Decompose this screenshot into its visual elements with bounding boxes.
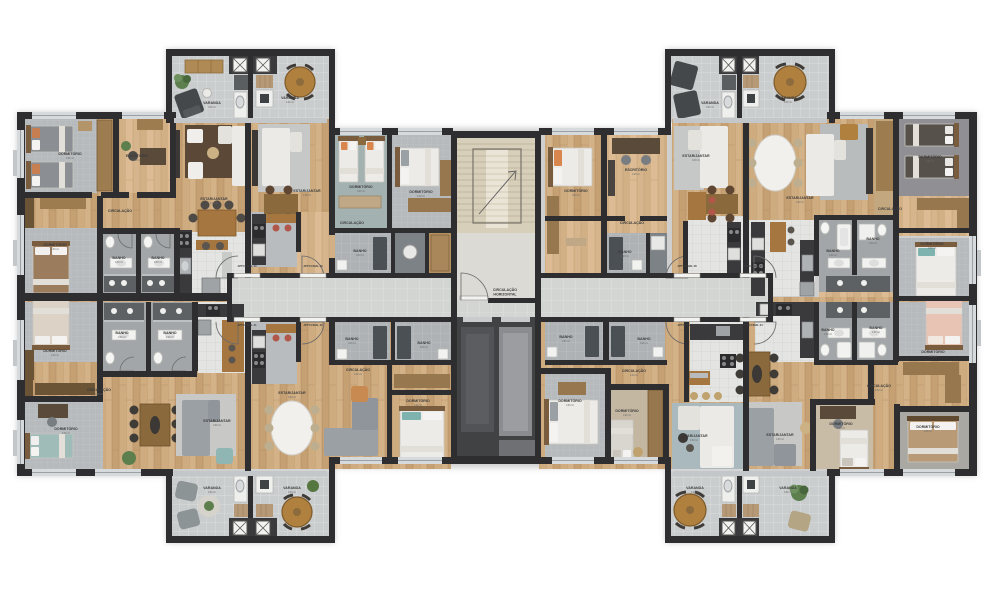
svg-text:0.00 m²: 0.00 m² — [208, 106, 216, 109]
svg-text:DORMITÓRIO: DORMITÓRIO — [43, 242, 67, 247]
svg-text:0.00 m²: 0.00 m² — [62, 432, 70, 435]
svg-text:VARANDA: VARANDA — [701, 101, 719, 105]
svg-text:BANHO: BANHO — [866, 237, 879, 241]
svg-text:ESTAR/JANTAR: ESTAR/JANTAR — [293, 189, 321, 193]
svg-text:0.00 m²: 0.00 m² — [288, 491, 296, 494]
svg-text:DORMITÓRIO: DORMITÓRIO — [409, 189, 433, 194]
svg-text:ESTAR/JANTAR: ESTAR/JANTAR — [682, 154, 710, 158]
svg-text:0.00 m²: 0.00 m² — [118, 336, 126, 339]
svg-text:0.00 m²: 0.00 m² — [354, 373, 362, 376]
svg-text:ESTAR/JANTAR: ESTAR/JANTAR — [680, 434, 708, 438]
svg-text:0.00 m²: 0.00 m² — [929, 355, 937, 358]
svg-text:0.00 m²: 0.00 m² — [213, 424, 221, 427]
svg-text:CIRCULAÇÃO: CIRCULAÇÃO — [340, 220, 364, 225]
svg-text:0.00 m²: 0.00 m² — [875, 389, 883, 392]
svg-text:0.00 m²: 0.00 m² — [133, 159, 141, 162]
svg-text:DORMITÓRIO: DORMITÓRIO — [918, 154, 942, 159]
svg-text:0.00 m²: 0.00 m² — [872, 331, 880, 334]
svg-text:DORMITÓRIO: DORMITÓRIO — [558, 398, 582, 403]
svg-text:0.00 m²: 0.00 m² — [924, 430, 932, 433]
svg-text:VARANDA: VARANDA — [283, 486, 301, 490]
svg-text:DORMITÓRIO: DORMITÓRIO — [829, 421, 853, 426]
svg-text:BANHO: BANHO — [151, 256, 164, 260]
svg-text:0.00 m²: 0.00 m² — [210, 202, 218, 205]
svg-text:CIRCULAÇÃO: CIRCULAÇÃO — [346, 367, 370, 372]
svg-text:0.00 m²: 0.00 m² — [829, 254, 837, 257]
svg-text:DORMITÓRIO: DORMITÓRIO — [406, 398, 430, 403]
svg-text:APTO FINAL 29: APTO FINAL 29 — [303, 264, 323, 268]
svg-text:APTO FINAL 30: APTO FINAL 30 — [237, 264, 257, 268]
svg-text:ESTAR/JANTAR: ESTAR/JANTAR — [786, 196, 814, 200]
svg-text:BANHO: BANHO — [353, 249, 366, 253]
svg-text:DORMITÓRIO: DORMITÓRIO — [43, 348, 67, 353]
svg-text:DORMITÓRIO: DORMITÓRIO — [54, 426, 78, 431]
svg-text:VARANDA: VARANDA — [203, 486, 221, 490]
svg-text:0.00 m²: 0.00 m² — [208, 491, 216, 494]
svg-text:BANHO: BANHO — [869, 326, 882, 330]
svg-text:0.00 m²: 0.00 m² — [640, 342, 648, 345]
svg-text:0.00 m²: 0.00 m² — [417, 195, 425, 198]
svg-text:CIRCULAÇÃO: CIRCULAÇÃO — [620, 220, 644, 225]
svg-text:0.00 m²: 0.00 m² — [66, 157, 74, 160]
svg-text:0.00 m²: 0.00 m² — [928, 247, 936, 250]
svg-text:BANHO: BANHO — [417, 341, 430, 345]
svg-text:HORIZONTAL: HORIZONTAL — [493, 293, 517, 297]
svg-text:0.00 m²: 0.00 m² — [572, 194, 580, 197]
svg-text:BANHO: BANHO — [115, 331, 128, 335]
svg-text:CIRCULAÇÃO: CIRCULAÇÃO — [867, 383, 891, 388]
svg-text:0.00 m²: 0.00 m² — [630, 374, 638, 377]
svg-text:APTO FINAL 32: APTO FINAL 32 — [303, 323, 323, 327]
svg-text:APTO FINAL 34: APTO FINAL 34 — [743, 323, 763, 327]
svg-text:ESTAR/JANTAR: ESTAR/JANTAR — [278, 391, 306, 395]
svg-text:0.00 m²: 0.00 m² — [566, 404, 574, 407]
svg-text:0.00 m²: 0.00 m² — [562, 340, 570, 343]
svg-text:0.00 m²: 0.00 m² — [166, 336, 174, 339]
svg-text:VARANDA: VARANDA — [203, 101, 221, 105]
svg-text:ESTAR/JANTAR: ESTAR/JANTAR — [766, 433, 794, 437]
svg-text:0.00 m²: 0.00 m² — [706, 106, 714, 109]
svg-text:0.00 m²: 0.00 m² — [115, 261, 123, 264]
svg-text:0.00 m²: 0.00 m² — [356, 254, 364, 257]
svg-text:0.00 m²: 0.00 m² — [776, 438, 784, 441]
svg-text:0.00 m²: 0.00 m² — [796, 201, 804, 204]
svg-text:CIRCULAÇÃO: CIRCULAÇÃO — [87, 387, 111, 392]
svg-text:0.00 m²: 0.00 m² — [154, 261, 162, 264]
svg-text:0.00 m²: 0.00 m² — [784, 491, 792, 494]
svg-text:BANHO: BANHO — [559, 335, 572, 339]
svg-text:BANHO: BANHO — [163, 331, 176, 335]
svg-text:0.00 m²: 0.00 m² — [51, 354, 59, 357]
svg-text:0.00 m²: 0.00 m² — [824, 333, 832, 336]
svg-text:CIRCULAÇÃO: CIRCULAÇÃO — [622, 368, 646, 373]
svg-text:0.00 m²: 0.00 m² — [690, 439, 698, 442]
svg-text:0.00 m²: 0.00 m² — [303, 194, 311, 197]
svg-text:0.00 m²: 0.00 m² — [837, 427, 845, 430]
svg-text:ESCRITÓRIO: ESCRITÓRIO — [126, 153, 149, 158]
svg-text:0.00 m²: 0.00 m² — [286, 101, 294, 104]
svg-text:0.00 m²: 0.00 m² — [420, 346, 428, 349]
svg-text:DORMITÓRIO: DORMITÓRIO — [615, 408, 639, 413]
svg-text:0.00 m²: 0.00 m² — [691, 491, 699, 494]
svg-text:DORMITÓRIO: DORMITÓRIO — [916, 424, 940, 429]
svg-text:DORMITÓRIO: DORMITÓRIO — [58, 151, 82, 156]
svg-text:0.00 m²: 0.00 m² — [348, 342, 356, 345]
svg-text:0.00 m²: 0.00 m² — [632, 173, 640, 176]
svg-text:0.00 m²: 0.00 m² — [926, 160, 934, 163]
svg-text:VARANDA: VARANDA — [779, 486, 797, 490]
svg-text:0.00 m²: 0.00 m² — [357, 190, 365, 193]
svg-text:DORMITÓRIO: DORMITÓRIO — [349, 184, 373, 189]
svg-text:BANHO: BANHO — [345, 337, 358, 341]
svg-text:0.00 m²: 0.00 m² — [784, 101, 792, 104]
svg-text:ESTAR/JANTAR: ESTAR/JANTAR — [203, 419, 231, 423]
svg-text:0.00 m²: 0.00 m² — [623, 414, 631, 417]
svg-text:BANHO: BANHO — [112, 256, 125, 260]
svg-text:VARANDA: VARANDA — [779, 96, 797, 100]
svg-text:0.00 m²: 0.00 m² — [869, 242, 877, 245]
svg-text:0.00 m²: 0.00 m² — [288, 396, 296, 399]
svg-text:DORMITÓRIO: DORMITÓRIO — [920, 241, 944, 246]
svg-text:VARANDA: VARANDA — [281, 96, 299, 100]
svg-text:APTO FINAL 27: APTO FINAL 27 — [743, 264, 763, 268]
svg-text:APTO FINAL 31: APTO FINAL 31 — [237, 323, 257, 327]
svg-text:0.00 m²: 0.00 m² — [621, 255, 629, 258]
svg-text:CIRCULAÇÃO: CIRCULAÇÃO — [493, 287, 517, 292]
svg-text:BANHO: BANHO — [821, 328, 834, 332]
svg-text:0.00 m²: 0.00 m² — [51, 248, 59, 251]
svg-text:ESTAR/JANTAR: ESTAR/JANTAR — [200, 197, 228, 201]
svg-text:DORMITÓRIO: DORMITÓRIO — [564, 188, 588, 193]
svg-text:DORMITÓRIO: DORMITÓRIO — [921, 349, 945, 354]
svg-text:APTO FINAL 28: APTO FINAL 28 — [677, 264, 697, 268]
svg-text:BANHO: BANHO — [637, 337, 650, 341]
svg-text:ESCRITÓRIO: ESCRITÓRIO — [625, 167, 648, 172]
svg-text:0.00 m²: 0.00 m² — [95, 393, 103, 396]
svg-text:0.00 m²: 0.00 m² — [414, 404, 422, 407]
svg-text:BANHO: BANHO — [826, 249, 839, 253]
svg-text:BANHO: BANHO — [618, 250, 631, 254]
svg-text:VARANDA: VARANDA — [686, 486, 704, 490]
svg-text:CIRCULAÇÃO: CIRCULAÇÃO — [878, 206, 902, 211]
svg-text:APTO FINAL 33: APTO FINAL 33 — [677, 323, 697, 327]
svg-text:0.00 m²: 0.00 m² — [692, 159, 700, 162]
svg-text:CIRCULAÇÃO: CIRCULAÇÃO — [108, 208, 132, 213]
